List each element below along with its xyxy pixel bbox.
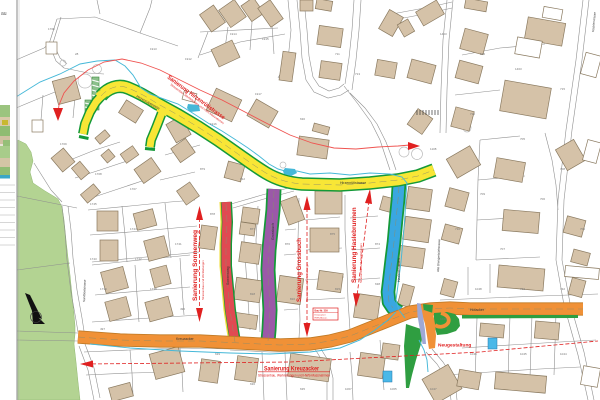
svg-text:1916: 1916 (210, 122, 217, 126)
svg-text:Sanierung Haslebrunnen: Sanierung Haslebrunnen (351, 207, 358, 283)
svg-text:1709: 1709 (60, 142, 67, 146)
svg-text:497: 497 (100, 327, 105, 331)
svg-text:HWS-Massn.: HWS-Massn. (315, 318, 328, 320)
svg-text:Grossbuch: Grossbuch (271, 223, 275, 240)
svg-text:630: 630 (300, 117, 305, 121)
svg-text:815: 815 (335, 287, 340, 291)
svg-text:812: 812 (240, 177, 245, 181)
svg-text:Strassenbau, Werkleitungen und: Strassenbau, Werkleitungen und HWS-Massn… (258, 374, 330, 378)
svg-text:733: 733 (520, 287, 525, 291)
svg-text:707: 707 (500, 247, 505, 251)
svg-text:1463: 1463 (515, 67, 522, 71)
svg-text:1046: 1046 (440, 317, 447, 321)
svg-text:1108: 1108 (430, 147, 437, 151)
svg-text:877: 877 (250, 227, 255, 231)
svg-text:1708: 1708 (95, 172, 102, 176)
svg-text:1739: 1739 (100, 287, 107, 291)
svg-text:1045: 1045 (520, 352, 527, 356)
svg-text:878: 878 (210, 212, 215, 216)
svg-text:710: 710 (455, 227, 460, 231)
svg-text:1463: 1463 (440, 32, 447, 36)
svg-text:816: 816 (290, 297, 295, 301)
svg-text:Sonnenweg: Sonnenweg (226, 266, 230, 285)
svg-text:706: 706 (540, 197, 545, 201)
svg-text:au: au (1, 11, 7, 17)
svg-text:879: 879 (200, 167, 205, 171)
svg-text:496: 496 (180, 307, 185, 311)
svg-text:1044: 1044 (560, 352, 567, 356)
svg-text:536: 536 (480, 52, 485, 56)
svg-text:Neugestaltung: Neugestaltung (438, 343, 471, 349)
svg-text:639: 639 (215, 352, 220, 356)
svg-text:732: 732 (560, 287, 565, 291)
svg-text:875: 875 (330, 232, 335, 236)
svg-text:1707: 1707 (130, 187, 137, 191)
svg-text:1047: 1047 (430, 387, 437, 391)
svg-text:Sandbüelstrasse: Sandbüelstrasse (82, 279, 87, 302)
svg-text:1742: 1742 (135, 257, 142, 261)
svg-text:Strassenbau und Werkleitungen: Strassenbau und Werkleitungen (305, 262, 309, 302)
svg-text:705: 705 (520, 137, 525, 141)
svg-text:Sanierung Sonnenweg: Sanierung Sonnenweg (192, 230, 199, 301)
svg-text:711: 711 (335, 52, 340, 56)
svg-text:708: 708 (560, 167, 565, 171)
svg-text:1917: 1917 (255, 92, 262, 96)
svg-text:1912: 1912 (185, 57, 192, 61)
svg-text:1913: 1913 (150, 47, 157, 51)
svg-text:1745: 1745 (90, 202, 97, 206)
svg-text:1065: 1065 (390, 387, 397, 391)
svg-text:876: 876 (285, 242, 290, 246)
svg-text:1738: 1738 (150, 287, 157, 291)
svg-text:Kreuzacker: Kreuzacker (315, 314, 326, 317)
svg-text:Bau-Nr. 359: Bau-Nr. 359 (315, 310, 329, 313)
svg-text:Strassenbau und Werkleitungen: Strassenbau und Werkleitungen (359, 243, 363, 283)
svg-text:1067: 1067 (345, 387, 352, 391)
svg-text:716: 716 (470, 112, 475, 116)
svg-text:638: 638 (375, 282, 380, 286)
svg-text:635: 635 (300, 387, 305, 391)
svg-text:709: 709 (480, 192, 485, 196)
svg-text:715: 715 (560, 87, 565, 91)
svg-text:1743: 1743 (90, 257, 97, 261)
svg-text:1741: 1741 (175, 242, 182, 246)
svg-text:1768: 1768 (48, 27, 55, 31)
svg-text:28: 28 (75, 52, 79, 56)
svg-text:704: 704 (580, 227, 585, 231)
svg-text:1744: 1744 (130, 227, 137, 231)
svg-text:636: 636 (250, 382, 255, 386)
svg-text:Strassenbau und Werkleitungen: Strassenbau und Werkleitungen (201, 260, 205, 300)
svg-text:1915: 1915 (262, 37, 269, 41)
svg-text:Hofacker: Hofacker (470, 308, 485, 312)
svg-text:1048: 1048 (475, 287, 482, 291)
svg-text:874: 874 (375, 242, 380, 246)
svg-text:Haslenbrunnen: Haslenbrunnen (397, 258, 401, 282)
svg-text:Sanierung Grossbuch: Sanierung Grossbuch (296, 238, 303, 302)
svg-text:713: 713 (355, 72, 360, 76)
svg-text:Hirzenrütistrasse: Hirzenrütistrasse (340, 181, 366, 185)
svg-text:Sanierung Kreuzacker: Sanierung Kreuzacker (264, 366, 319, 373)
svg-text:1914: 1914 (230, 32, 237, 36)
svg-text:818: 818 (250, 292, 255, 296)
svg-text:Kreuzacker: Kreuzacker (176, 337, 195, 341)
